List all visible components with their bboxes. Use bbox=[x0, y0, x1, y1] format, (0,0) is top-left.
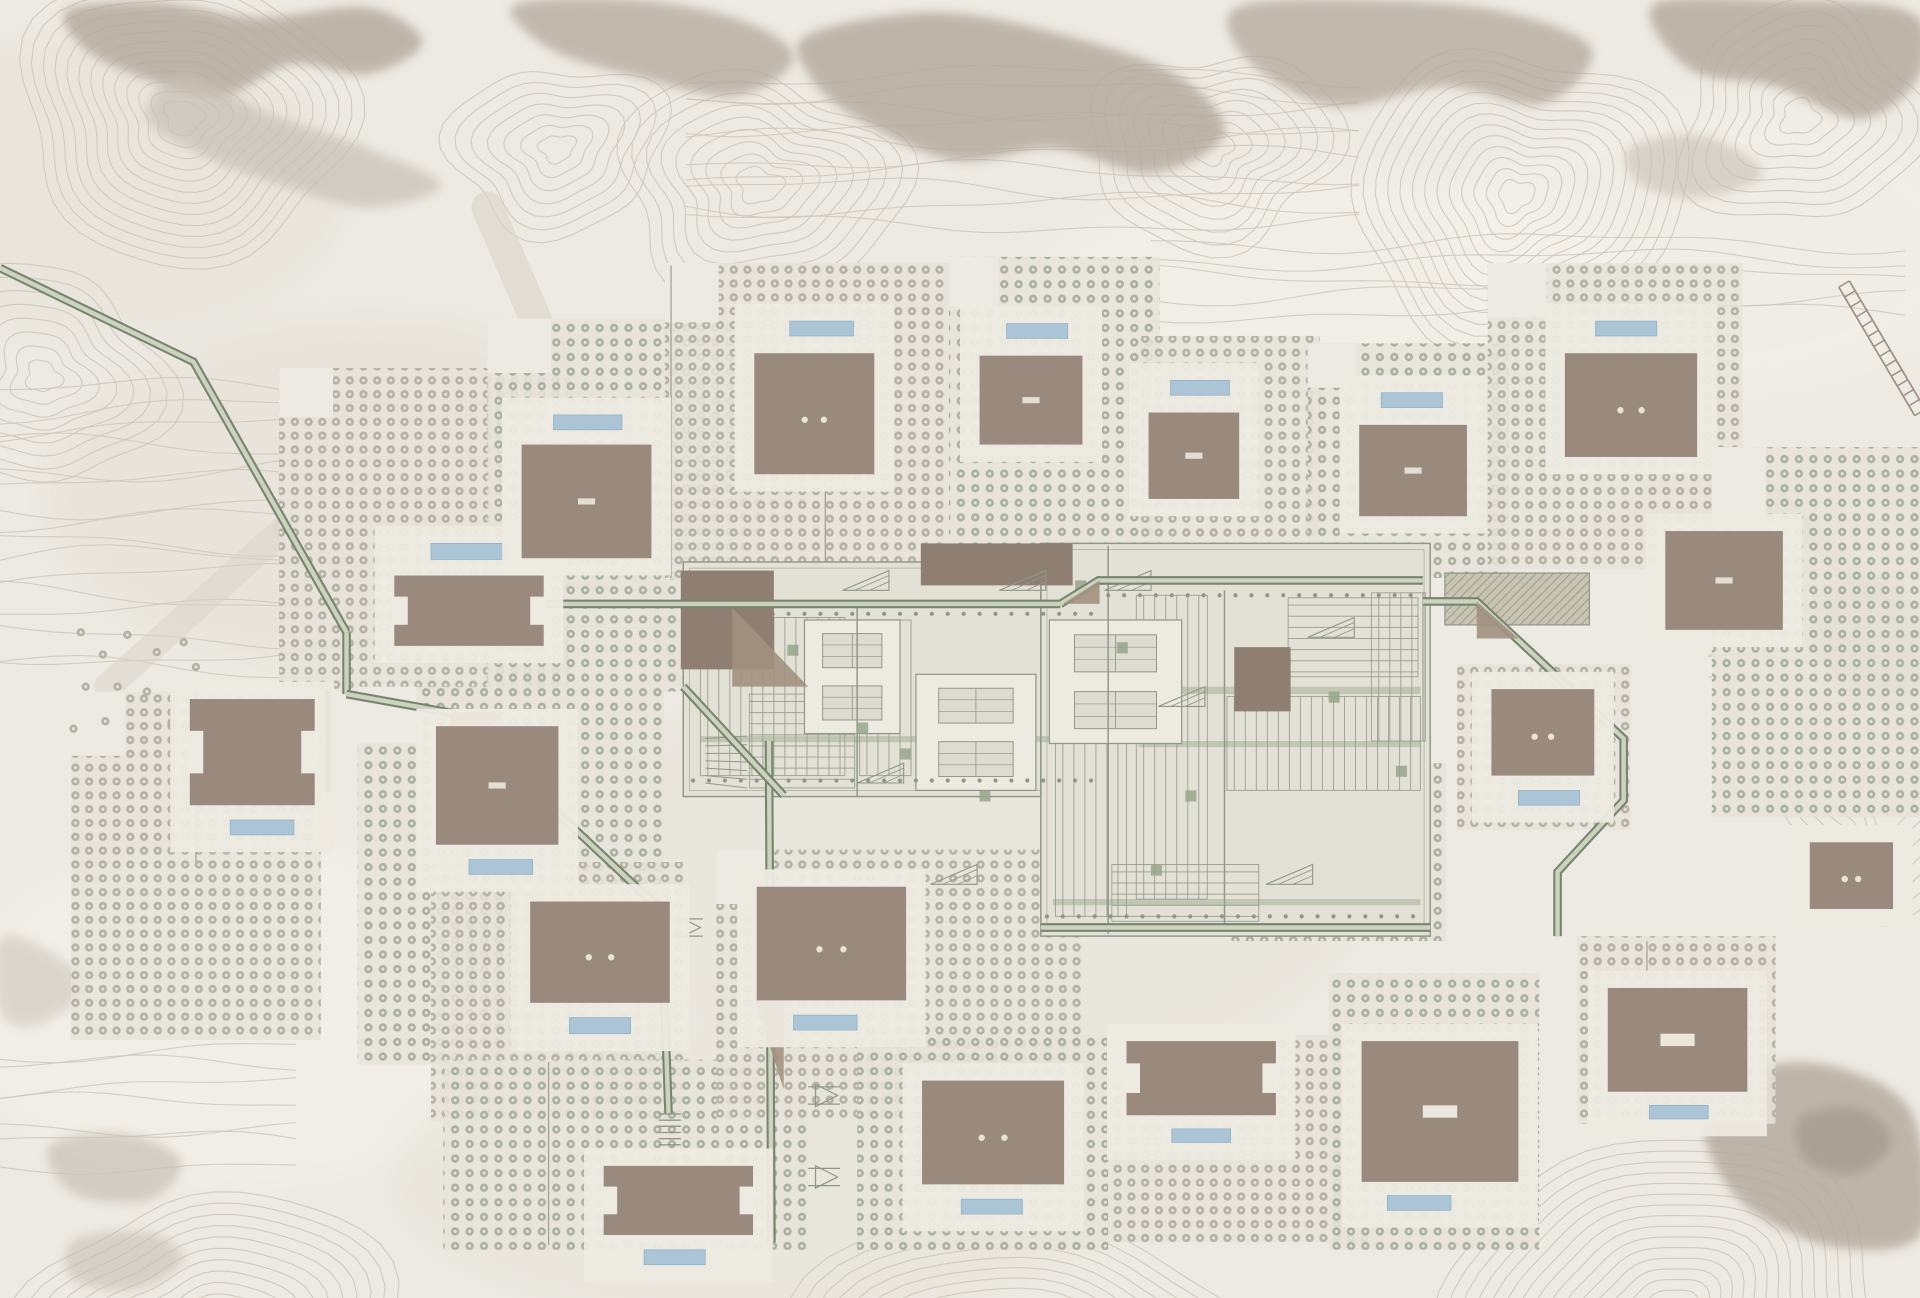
pavilion-building bbox=[530, 902, 670, 1003]
water-basin bbox=[569, 1018, 630, 1034]
complex-building bbox=[921, 543, 1073, 585]
courtyard bbox=[1049, 620, 1181, 744]
building-parcel bbox=[1107, 1024, 1296, 1160]
building-parcel bbox=[1129, 363, 1259, 516]
pavilion-building bbox=[604, 1166, 753, 1235]
water-basin bbox=[1518, 790, 1579, 805]
pavilion-building bbox=[190, 699, 315, 805]
building-parcel bbox=[1790, 825, 1912, 926]
building-parcel bbox=[737, 869, 926, 1047]
pavilion-building bbox=[754, 353, 874, 474]
building-parcel bbox=[170, 682, 334, 852]
building-parcel bbox=[960, 306, 1102, 462]
pavilion-building bbox=[1810, 842, 1893, 909]
site-plan-svg bbox=[0, 0, 1920, 1298]
pavilion-building bbox=[394, 576, 543, 646]
pavilion-building bbox=[922, 1081, 1064, 1185]
pavilion-building bbox=[1491, 689, 1594, 775]
pavilion-building bbox=[1127, 1041, 1276, 1115]
building-parcel bbox=[511, 884, 690, 1051]
water-basin bbox=[1381, 393, 1442, 408]
building-parcel bbox=[735, 304, 894, 492]
building-parcel bbox=[1342, 1024, 1538, 1228]
building-parcel bbox=[1545, 304, 1716, 474]
water-basin bbox=[230, 820, 294, 835]
water-basin bbox=[1649, 1105, 1708, 1119]
water-basin bbox=[1172, 1129, 1231, 1143]
water-basin bbox=[469, 860, 533, 875]
building-parcel bbox=[502, 398, 671, 576]
courtyard bbox=[804, 620, 900, 734]
water-basin bbox=[1171, 380, 1230, 395]
building-parcel bbox=[902, 1063, 1083, 1231]
building-parcel bbox=[584, 1149, 773, 1282]
building-parcel bbox=[416, 709, 578, 892]
water-basin bbox=[553, 415, 622, 430]
water-basin bbox=[1007, 324, 1068, 339]
water-basin bbox=[793, 1015, 857, 1030]
complex-building bbox=[1234, 647, 1290, 711]
water-basin bbox=[961, 1199, 1022, 1214]
water-basin bbox=[431, 543, 507, 559]
pavilion-building bbox=[757, 887, 906, 1001]
masterplan-canvas bbox=[0, 0, 1920, 1298]
building-parcel bbox=[1340, 375, 1487, 533]
water-basin bbox=[790, 321, 854, 336]
courtyard bbox=[916, 674, 1036, 790]
building-parcel bbox=[1472, 672, 1614, 823]
water-basin bbox=[644, 1250, 705, 1265]
building-parcel bbox=[1646, 514, 1803, 647]
water-basin bbox=[1596, 321, 1657, 336]
water-basin bbox=[1387, 1195, 1451, 1210]
pavilion-building bbox=[1565, 353, 1697, 457]
building-parcel bbox=[1588, 971, 1767, 1136]
